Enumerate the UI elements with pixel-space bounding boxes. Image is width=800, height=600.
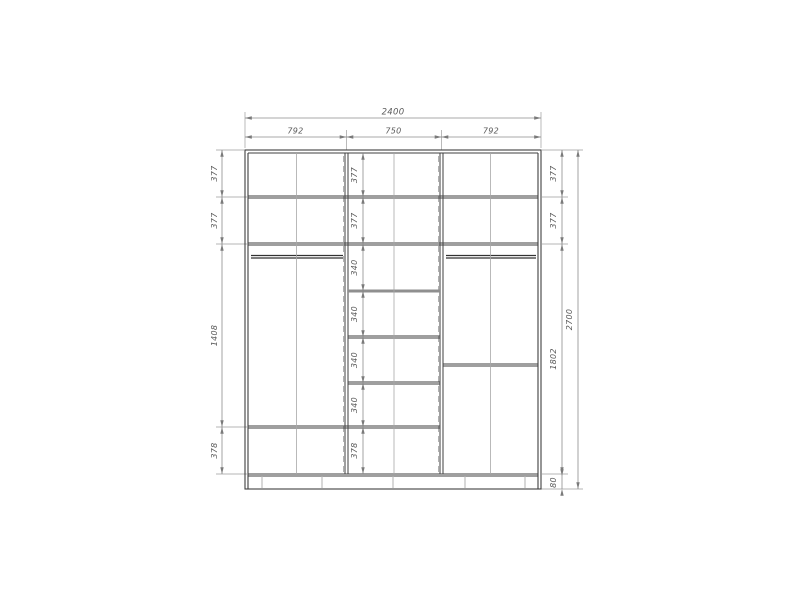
dim-label-left-377a: 377 — [210, 165, 219, 182]
dim-label-mid-340a: 340 — [350, 259, 359, 275]
left-and-middle-shelf — [248, 426, 440, 428]
dim-label-mid-378: 378 — [350, 442, 359, 458]
carcass-outline — [245, 150, 541, 489]
dim-label-right-377b: 377 — [549, 212, 558, 229]
hanging-rods — [251, 256, 536, 259]
dimension-labels: 2400 792 750 792 377 377 1408 378 377 37… — [210, 108, 574, 488]
dim-label-right-80: 80 — [549, 477, 558, 488]
dim-label-left-1408: 1408 — [210, 325, 219, 347]
wardrobe-dimension-drawing: 2400 792 750 792 377 377 1408 378 377 37… — [0, 0, 800, 600]
dim-label-right-1802: 1802 — [549, 348, 558, 370]
wardrobe-elevation-svg: 2400 792 750 792 377 377 1408 378 377 37… — [0, 0, 800, 600]
dim-label-section-middle: 750 — [385, 127, 401, 136]
plinth-feet — [262, 476, 525, 488]
dim-label-right-377a: 377 — [549, 165, 558, 182]
extension-lines — [216, 112, 583, 489]
dim-label-left-377b: 377 — [210, 212, 219, 229]
dim-label-section-left: 792 — [287, 127, 303, 136]
dim-label-mid-340b: 340 — [350, 306, 359, 322]
full-width-shelves — [248, 196, 538, 245]
dim-label-mid-340d: 340 — [350, 397, 359, 413]
dimension-arrows — [220, 116, 579, 496]
bottom-panel — [248, 474, 538, 476]
dim-label-mid-377b: 377 — [350, 212, 359, 229]
dim-label-section-right: 792 — [483, 127, 499, 136]
dimension-lines — [222, 118, 578, 489]
dim-label-mid-340c: 340 — [350, 352, 359, 368]
dim-label-mid-377a: 377 — [350, 166, 359, 183]
dim-label-left-378: 378 — [210, 442, 219, 458]
dim-label-overall-height: 2700 — [565, 309, 574, 331]
dim-label-overall-width: 2400 — [382, 108, 405, 118]
